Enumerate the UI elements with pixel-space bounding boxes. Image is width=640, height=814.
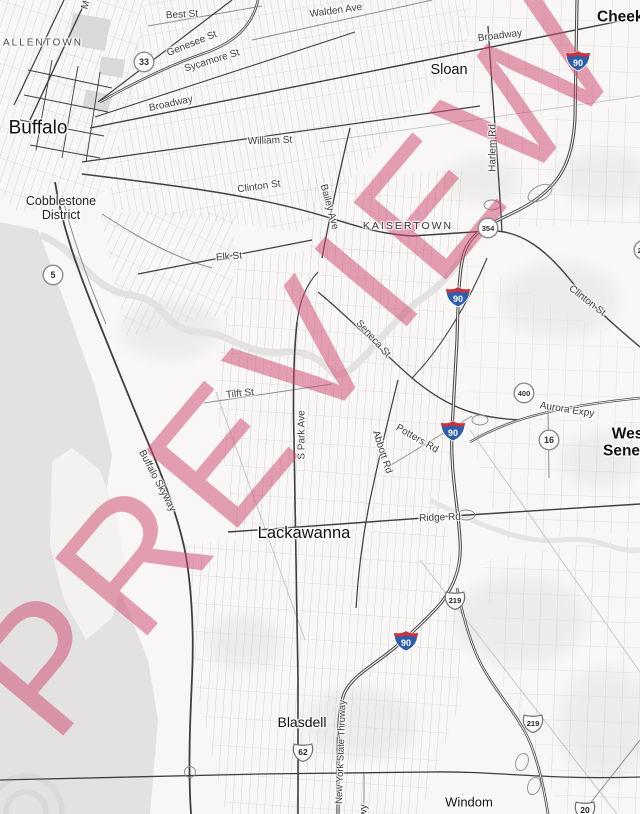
shield-interstate-90: 90 <box>393 630 419 652</box>
street-label-tilft-st: Tilft St <box>226 387 255 401</box>
street-label-buffalo-skyway: Buffalo Skyway <box>136 448 178 513</box>
map-canvas[interactable]: PREVIEW ALLENTOWNBuffaloCobblestone Dist… <box>0 0 640 814</box>
svg-text:62: 62 <box>298 747 308 757</box>
svg-text:5: 5 <box>50 270 55 280</box>
street-label-elk-st: Elk St <box>215 250 242 263</box>
shield-interstate-90: 90 <box>445 286 471 308</box>
svg-text:354: 354 <box>482 224 495 233</box>
shield-us-219: 219 <box>443 590 467 611</box>
shield-interstate-90: 90 <box>440 420 466 442</box>
shield-us-219: 219 <box>521 713 545 734</box>
street-label-nys-thruway: New York State Thruway <box>335 700 349 804</box>
shield-circle-16: 16 <box>537 428 561 452</box>
shield-us-20: 20 <box>573 800 597 814</box>
street-label-s-park-ave: S Park Ave <box>296 410 307 459</box>
street-label-bailey-ave: Bailey Ave <box>318 183 341 231</box>
place-label-sloan: Sloan <box>430 62 467 78</box>
street-label-seneca-st: Seneca St <box>353 318 392 360</box>
street-label-ridge-rd: Ridge Rd <box>419 512 461 525</box>
street-label-best-st: Best St <box>166 9 199 22</box>
place-label-blasdell: Blasdell <box>277 715 326 731</box>
street-label-potters-rd: Potters Rd <box>394 422 441 455</box>
shield-interstate-90: 90 <box>565 50 591 72</box>
place-label-west-seneca: West Seneca <box>603 426 640 461</box>
street-label-abbott-rd: Abbott Rd <box>370 429 394 475</box>
shield-us-62: 62 <box>291 742 315 763</box>
street-label-clinton-st-east: Clinton St <box>566 283 607 319</box>
street-label-broadway-east: Broadway <box>477 28 523 45</box>
svg-text:16: 16 <box>544 435 554 445</box>
street-label-william-st: William St <box>248 135 293 148</box>
place-label-lackawanna: Lackawanna <box>258 524 351 542</box>
street-label-sycamore-st: Sycamore St <box>183 47 241 74</box>
place-label-windom: Windom <box>445 796 493 811</box>
place-label-buffalo: Buffalo <box>9 117 68 138</box>
svg-text:400: 400 <box>518 389 531 398</box>
shield-circle-400: 400 <box>512 381 536 405</box>
street-label-harlem-rd: Harlem Rd <box>487 124 498 172</box>
shield-circle-5: 5 <box>41 263 65 287</box>
place-label-kaisertown: KAISERTOWN <box>363 221 453 233</box>
place-label-cobblestone-district: Cobblestone District <box>26 194 96 222</box>
street-label-aurora-expy: Aurora Expy <box>539 400 595 420</box>
street-label-clinton-st-west: Clinton St <box>237 178 281 195</box>
svg-text:219: 219 <box>449 596 462 605</box>
place-label-cheektowaga: Cheektowaga <box>597 8 640 25</box>
street-label-m-street-partial: M <box>79 0 92 11</box>
shield-circle-33: 33 <box>132 50 156 74</box>
shield-circle-240: 240 <box>632 238 640 262</box>
svg-text:90: 90 <box>573 58 583 68</box>
shield-circle-354: 354 <box>476 216 500 240</box>
street-label-walden-ave: Walden Ave <box>309 2 363 20</box>
place-label-allentown: ALLENTOWN <box>3 37 83 48</box>
svg-text:90: 90 <box>448 428 458 438</box>
svg-text:20: 20 <box>580 805 590 814</box>
street-label-broadway-west: Broadway <box>148 94 194 114</box>
labels-layer: ALLENTOWNBuffaloCobblestone DistrictSloa… <box>0 0 640 814</box>
svg-text:33: 33 <box>139 57 149 67</box>
street-label-genesee-st: Genesee St <box>165 29 218 59</box>
svg-text:90: 90 <box>453 294 463 304</box>
street-label-mckinley-pkwy: McKinley Pkwy <box>358 804 369 814</box>
svg-text:219: 219 <box>527 719 540 728</box>
svg-text:90: 90 <box>401 638 411 648</box>
